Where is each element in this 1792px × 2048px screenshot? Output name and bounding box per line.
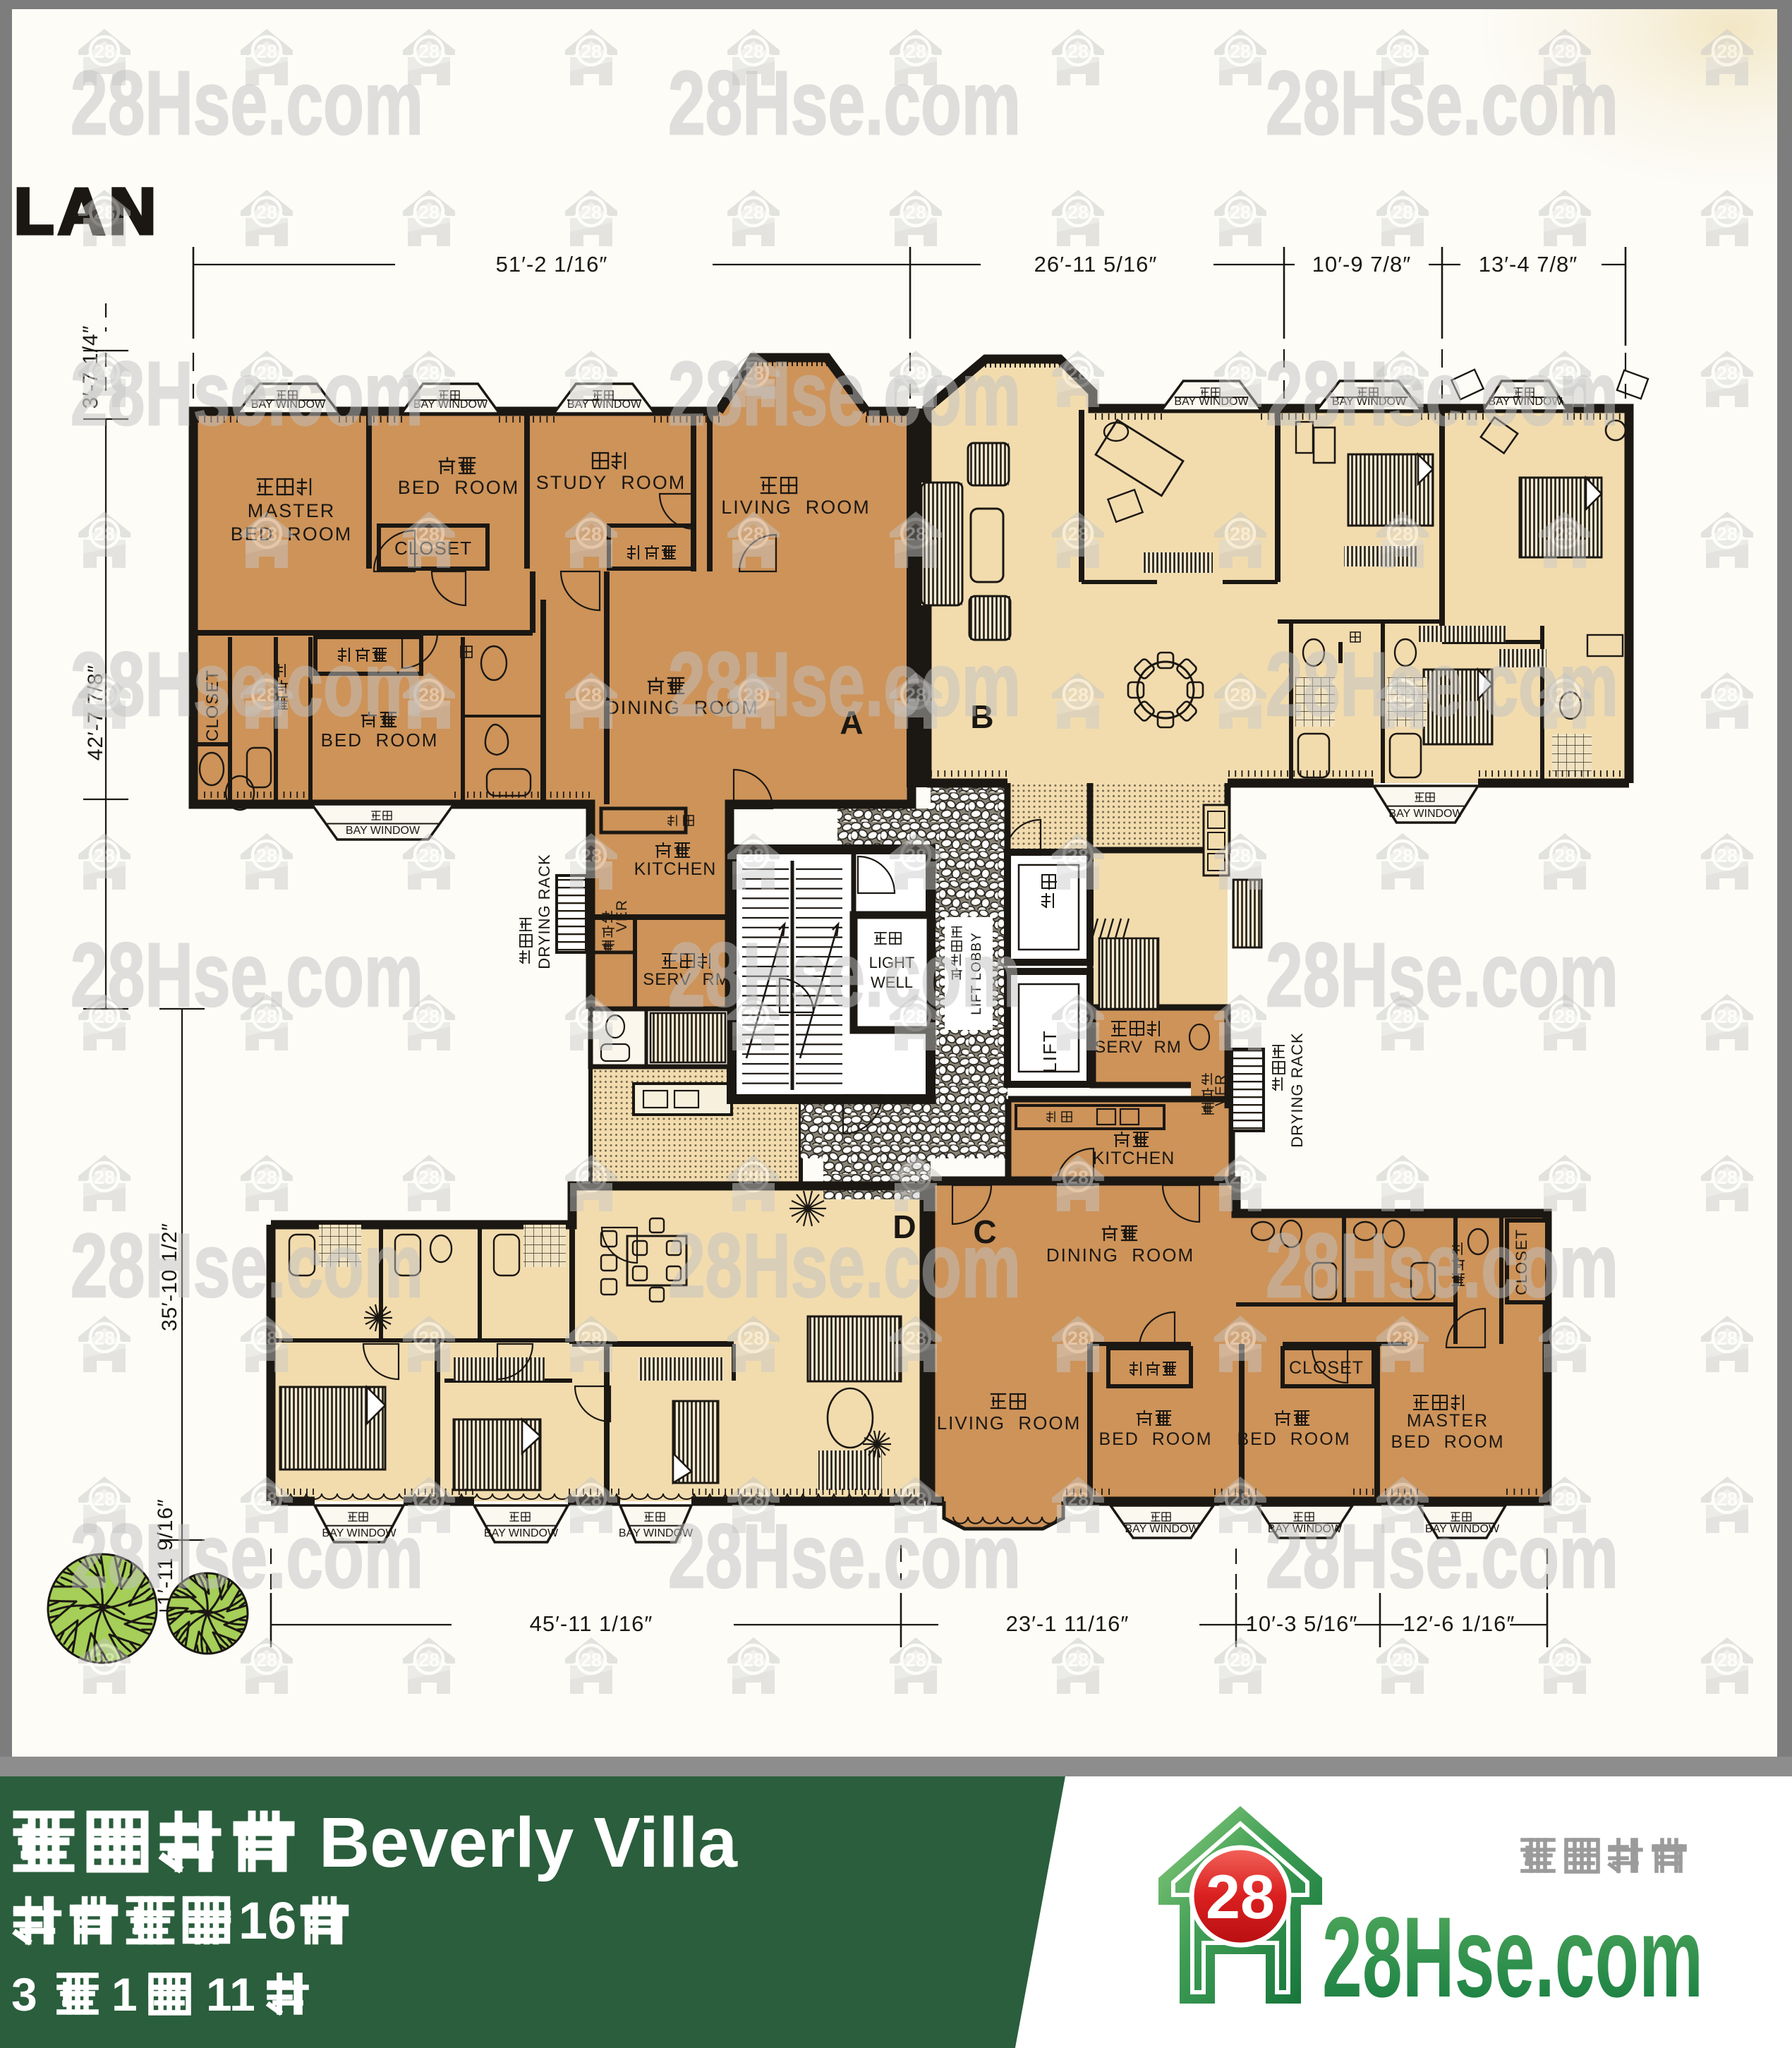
svg-text:28: 28	[581, 845, 602, 866]
svg-text:VER: VER	[614, 899, 630, 932]
svg-text:28Hse.com: 28Hse.com	[668, 1506, 1021, 1607]
svg-text:28: 28	[1717, 1167, 1738, 1188]
svg-text:28Hse.com: 28Hse.com	[1322, 1894, 1703, 2021]
svg-text:VER: VER	[1213, 1074, 1229, 1106]
svg-text:28Hse.com: 28Hse.com	[71, 634, 423, 735]
svg-text:28: 28	[743, 1649, 764, 1671]
svg-text:28: 28	[581, 1006, 602, 1027]
svg-text:DRYING RACK: DRYING RACK	[1288, 1032, 1306, 1147]
svg-text:28: 28	[1392, 1167, 1413, 1188]
svg-text:28: 28	[1067, 1328, 1089, 1349]
svg-text:28: 28	[94, 845, 115, 866]
svg-text:28: 28	[905, 845, 926, 866]
svg-text:28: 28	[1067, 202, 1089, 223]
svg-text:51′-2 1/16″: 51′-2 1/16″	[496, 252, 608, 277]
svg-text:28: 28	[581, 1489, 602, 1510]
svg-text:28: 28	[743, 523, 764, 545]
svg-text:BAY WINDOW: BAY WINDOW	[484, 1527, 559, 1539]
svg-text:28: 28	[1554, 1649, 1575, 1671]
svg-text:28: 28	[1067, 684, 1089, 705]
svg-text:28: 28	[905, 1328, 926, 1349]
svg-text:28: 28	[1554, 845, 1575, 866]
svg-text:28: 28	[1717, 1006, 1738, 1027]
svg-text:Beverly Villa: Beverly Villa	[319, 1803, 738, 1882]
svg-text:28: 28	[1554, 1167, 1575, 1188]
svg-text:10′-3 5/16″: 10′-3 5/16″	[1246, 1611, 1358, 1636]
svg-text:28: 28	[94, 202, 115, 223]
svg-text:28: 28	[1067, 845, 1089, 866]
svg-text:28: 28	[1717, 1489, 1738, 1510]
svg-text:28: 28	[1067, 41, 1089, 62]
svg-text:28: 28	[1230, 1649, 1251, 1671]
svg-text:45′-11 1/16″: 45′-11 1/16″	[530, 1611, 653, 1636]
svg-text:16: 16	[238, 1891, 296, 1950]
svg-text:28: 28	[1067, 523, 1089, 545]
svg-text:28: 28	[94, 1167, 115, 1188]
svg-text:KITCHEN: KITCHEN	[634, 859, 717, 879]
svg-text:28Hse.com: 28Hse.com	[668, 344, 1021, 444]
svg-text:28: 28	[581, 363, 602, 384]
svg-text:23′-1 11/16″: 23′-1 11/16″	[1006, 1611, 1130, 1636]
svg-text:28: 28	[1717, 363, 1738, 384]
svg-text:28: 28	[256, 1649, 277, 1671]
svg-text:10′-9 7/8″: 10′-9 7/8″	[1312, 252, 1412, 277]
svg-text:LIVING ROOM: LIVING ROOM	[721, 497, 871, 518]
svg-text:DRYING RACK: DRYING RACK	[535, 854, 553, 969]
svg-text:BAY WINDOW: BAY WINDOW	[1388, 808, 1463, 820]
svg-text:28Hse.com: 28Hse.com	[71, 1506, 423, 1607]
svg-text:28: 28	[418, 523, 440, 545]
svg-text:28Hse.com: 28Hse.com	[668, 634, 1021, 735]
svg-text:BAY WINDOW: BAY WINDOW	[413, 399, 488, 411]
svg-text:28: 28	[1717, 523, 1738, 545]
svg-text:28: 28	[1206, 1862, 1275, 1932]
svg-text:28: 28	[1230, 1006, 1251, 1027]
svg-text:28Hse.com: 28Hse.com	[71, 1216, 423, 1316]
svg-text:BED ROOM: BED ROOM	[1391, 1432, 1504, 1452]
svg-text:11: 11	[206, 1968, 255, 2020]
svg-text:28Hse.com: 28Hse.com	[668, 925, 1021, 1026]
svg-text:28: 28	[905, 1167, 926, 1188]
svg-text:12′-6 1/16″: 12′-6 1/16″	[1403, 1611, 1515, 1636]
svg-text:28: 28	[1392, 845, 1413, 866]
svg-text:KITCHEN: KITCHEN	[1093, 1149, 1175, 1168]
svg-text:28: 28	[94, 1649, 115, 1671]
svg-text:28: 28	[1392, 202, 1413, 223]
svg-text:28: 28	[256, 1328, 277, 1349]
svg-text:26′-11 5/16″: 26′-11 5/16″	[1034, 252, 1158, 277]
svg-text:28Hse.com: 28Hse.com	[71, 925, 423, 1026]
svg-text:28: 28	[743, 202, 764, 223]
svg-text:28: 28	[1392, 1649, 1413, 1671]
svg-text:28: 28	[1392, 1328, 1413, 1349]
svg-text:SERV RM: SERV RM	[1094, 1038, 1182, 1057]
svg-text:28: 28	[1067, 1649, 1089, 1671]
svg-text:BAY WINDOW: BAY WINDOW	[346, 825, 420, 837]
svg-text:MASTER: MASTER	[1407, 1411, 1489, 1431]
svg-text:BED ROOM: BED ROOM	[1237, 1429, 1350, 1449]
svg-text:28Hse.com: 28Hse.com	[71, 53, 423, 154]
svg-text:28: 28	[1717, 684, 1738, 705]
svg-text:28: 28	[256, 523, 277, 545]
svg-text:28: 28	[743, 1328, 764, 1349]
svg-text:28Hse.com: 28Hse.com	[1266, 344, 1618, 444]
svg-text:28: 28	[1067, 1489, 1089, 1510]
svg-text:28: 28	[1230, 363, 1251, 384]
svg-text:28Hse.com: 28Hse.com	[1266, 1216, 1618, 1316]
svg-text:CLOSET: CLOSET	[1289, 1358, 1364, 1378]
svg-text:28: 28	[418, 202, 440, 223]
svg-text:28: 28	[1230, 684, 1251, 705]
svg-text:28: 28	[1230, 1489, 1251, 1510]
svg-text:28: 28	[1717, 1649, 1738, 1671]
svg-text:28: 28	[1230, 845, 1251, 866]
svg-text:28: 28	[1554, 202, 1575, 223]
svg-text:BED ROOM: BED ROOM	[398, 477, 520, 498]
svg-text:28Hse.com: 28Hse.com	[668, 53, 1021, 154]
svg-text:28: 28	[743, 845, 764, 866]
svg-text:28: 28	[1392, 523, 1413, 545]
svg-text:28: 28	[418, 1167, 440, 1188]
svg-text:28Hse.com: 28Hse.com	[1266, 634, 1618, 735]
svg-text:28: 28	[581, 1167, 602, 1188]
svg-text:28: 28	[1067, 1006, 1089, 1027]
svg-text:28: 28	[1717, 845, 1738, 866]
svg-text:BED ROOM: BED ROOM	[1098, 1429, 1212, 1449]
svg-text:3: 3	[11, 1968, 37, 2020]
svg-text:28Hse.com: 28Hse.com	[668, 1216, 1021, 1316]
svg-text:DINING ROOM: DINING ROOM	[1046, 1244, 1194, 1266]
svg-text:28: 28	[581, 41, 602, 62]
svg-text:1: 1	[111, 1968, 138, 2020]
svg-text:28: 28	[905, 202, 926, 223]
svg-text:13′-4 7/8″: 13′-4 7/8″	[1479, 252, 1578, 277]
svg-text:28: 28	[1717, 202, 1738, 223]
svg-text:BAY WINDOW: BAY WINDOW	[1174, 396, 1249, 408]
svg-text:28: 28	[581, 202, 602, 223]
svg-text:28: 28	[1230, 1328, 1251, 1349]
svg-text:28: 28	[256, 845, 277, 866]
svg-text:28: 28	[905, 523, 926, 545]
svg-text:28: 28	[94, 1328, 115, 1349]
svg-text:LIVING ROOM: LIVING ROOM	[937, 1412, 1082, 1434]
svg-text:28: 28	[1067, 363, 1089, 384]
svg-text:28: 28	[1230, 202, 1251, 223]
svg-text:28Hse.com: 28Hse.com	[1266, 53, 1618, 154]
svg-text:28: 28	[1230, 523, 1251, 545]
svg-text:28: 28	[581, 1328, 602, 1349]
svg-text:28: 28	[1230, 1167, 1251, 1188]
svg-text:28: 28	[1717, 1328, 1738, 1349]
svg-text:28: 28	[581, 684, 602, 705]
svg-text:28: 28	[905, 1649, 926, 1671]
svg-text:28: 28	[256, 1167, 277, 1188]
svg-text:28: 28	[1554, 1328, 1575, 1349]
svg-text:28: 28	[1230, 41, 1251, 62]
svg-text:28: 28	[418, 1328, 440, 1349]
svg-text:28: 28	[94, 523, 115, 545]
svg-text:STUDY ROOM: STUDY ROOM	[536, 472, 686, 493]
svg-text:28: 28	[256, 202, 277, 223]
svg-text:28: 28	[1717, 41, 1738, 62]
svg-text:28: 28	[581, 1649, 602, 1671]
svg-text:28: 28	[418, 845, 440, 866]
svg-text:28Hse.com: 28Hse.com	[71, 344, 423, 444]
svg-text:28: 28	[1554, 523, 1575, 545]
svg-text:28: 28	[581, 523, 602, 545]
svg-text:28Hse.com: 28Hse.com	[1266, 925, 1618, 1026]
svg-text:28: 28	[418, 1649, 440, 1671]
svg-text:28Hse.com: 28Hse.com	[1266, 1506, 1618, 1607]
svg-text:28: 28	[743, 1167, 764, 1188]
svg-text:BAY WINDOW: BAY WINDOW	[1125, 1523, 1199, 1535]
svg-text:28: 28	[1067, 1167, 1089, 1188]
